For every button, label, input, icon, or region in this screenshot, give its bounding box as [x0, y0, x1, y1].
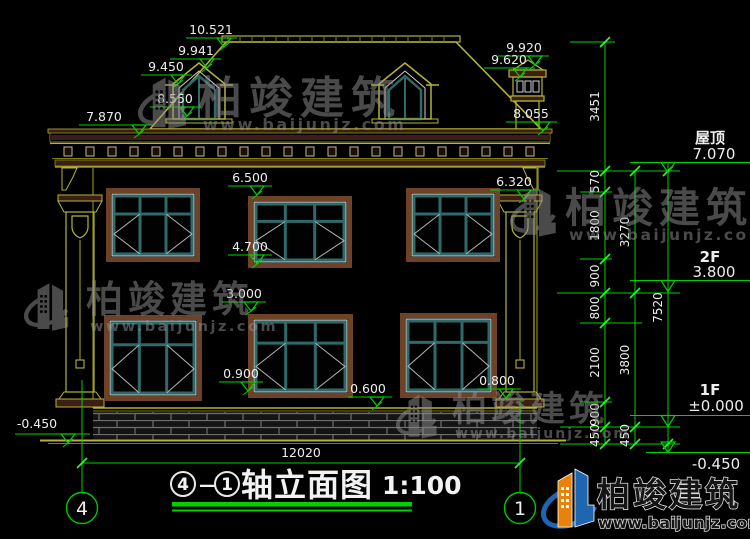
title-axis-start: 4: [177, 475, 189, 495]
watermark-url: www.baijunjz.com: [203, 115, 406, 134]
watermark-brand: 柏竣建筑: [565, 184, 750, 232]
dentil: [306, 147, 314, 156]
dentil: [64, 147, 72, 156]
elevation-value: 6.500: [232, 170, 268, 185]
elevation-value: 9.450: [148, 59, 184, 74]
flag-value: -0.450: [692, 455, 740, 473]
title-text: 轴立面图: [241, 466, 373, 504]
title-axis-end: 1: [221, 475, 233, 495]
axis-number: 1: [514, 498, 526, 520]
elevation-value: 10.521: [189, 22, 233, 37]
watermark-url: www.baijunjz.com: [90, 319, 278, 335]
title-underline-thick: [172, 502, 412, 507]
window: [109, 191, 198, 260]
elevation-value: 6.320: [496, 174, 532, 189]
dentil: [174, 147, 182, 156]
brand-url: www.baijunjz.com: [598, 514, 750, 532]
dentil: [416, 147, 424, 156]
axis-number: 4: [76, 498, 88, 520]
dim-chain-value: 900: [588, 265, 602, 288]
dentil: [438, 147, 446, 156]
watermark-brand: 柏竣建筑: [452, 389, 608, 430]
title-scale: 1:100: [382, 471, 462, 500]
dim-chain-value: 3451: [588, 91, 602, 122]
dentil: [350, 147, 358, 156]
elevation-value: 9.620: [491, 52, 527, 67]
watermark-url: www.baijunjz.com: [569, 226, 750, 244]
dim-chain-value: 800: [588, 297, 602, 320]
elevation-value: 9.941: [178, 43, 214, 58]
window: [409, 191, 498, 260]
dentil: [284, 147, 292, 156]
elevation-value: 0.800: [479, 373, 515, 388]
watermark-brand: 柏竣建筑: [86, 278, 254, 321]
flag-value: ±0.000: [688, 397, 744, 415]
elevation-value: 0.900: [223, 366, 259, 381]
dim-chain-value: 3800: [618, 345, 632, 376]
elevation-value: 7.870: [86, 109, 122, 124]
title-underline-thin: [172, 510, 412, 512]
dimension-label: 12020: [281, 445, 321, 460]
brand-name: 柏竣建筑: [597, 475, 741, 514]
brand-logo: 柏竣建筑 www.baijunjz.com: [538, 469, 750, 534]
dentil: [482, 147, 490, 156]
flag-value: 7.070: [693, 145, 736, 163]
dentil: [152, 147, 160, 156]
dentil: [372, 147, 380, 156]
dentil: [240, 147, 248, 156]
dentil: [504, 147, 512, 156]
dentil: [262, 147, 270, 156]
watermark-right: 柏竣建筑 www.baijunjz.com: [507, 184, 750, 244]
elevation-value: 8.055: [513, 106, 549, 121]
dentil: [394, 147, 402, 156]
elevation-value: 0.600: [350, 381, 386, 396]
elevation-value: 4.700: [232, 239, 268, 254]
logo-building-orange: [558, 473, 572, 527]
dim-chain-value: 2100: [588, 347, 602, 378]
watermark-url: www.baijunjz.com: [455, 426, 630, 442]
dim-chain-value: 7520: [651, 292, 665, 323]
elevation-drawing: 10.5219.9419.4508.5507.8709.9209.6208.05…: [0, 0, 750, 539]
dentil: [130, 147, 138, 156]
dentil: [108, 147, 116, 156]
elevation-value: -0.450: [17, 416, 57, 431]
dentil: [218, 147, 226, 156]
dentil: [460, 147, 468, 156]
dentil: [328, 147, 336, 156]
dentil: [196, 147, 204, 156]
dentil: [526, 147, 534, 156]
dentil: [86, 147, 94, 156]
flag-value: 3.800: [693, 263, 736, 281]
